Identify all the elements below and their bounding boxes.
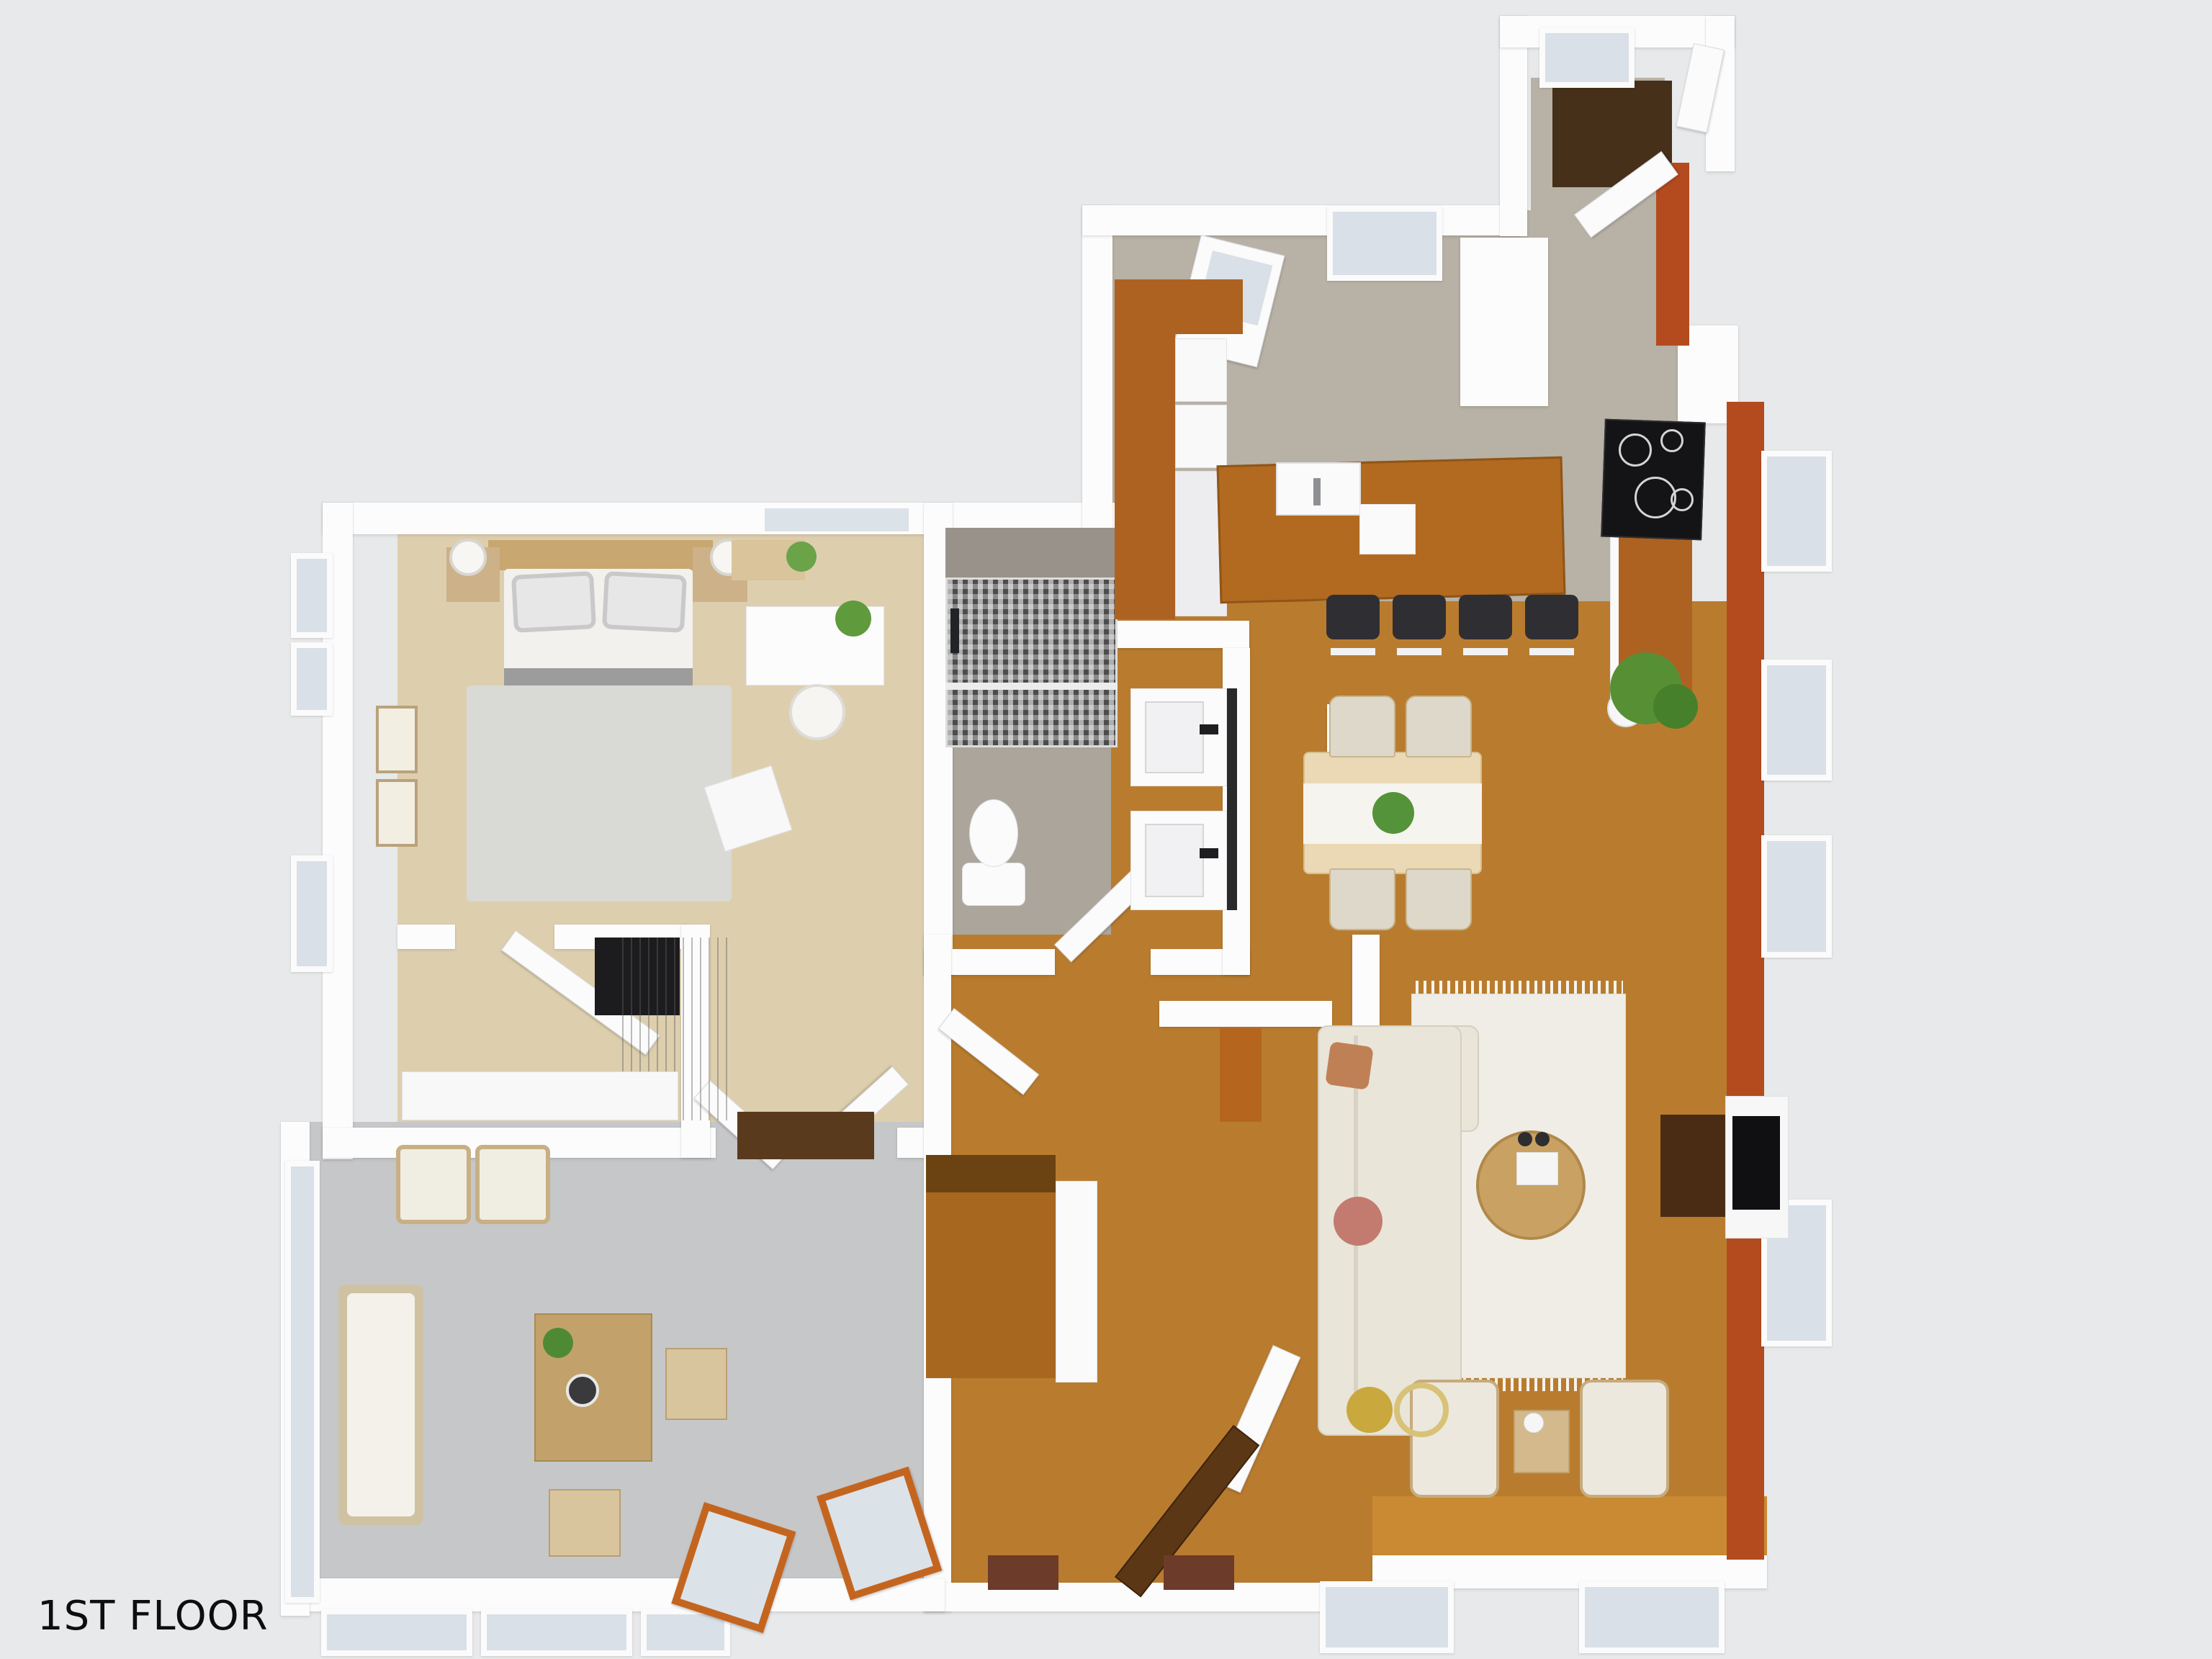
wall-mudroom-left	[1500, 16, 1527, 236]
shower-glass-edge	[945, 683, 1118, 690]
window-bedroom-1	[291, 553, 333, 638]
wall-closet-left	[397, 925, 455, 949]
decor-gold-ring	[1394, 1382, 1449, 1437]
sunroom-armchair-2	[475, 1145, 550, 1224]
wall-corridor-orange	[1656, 163, 1689, 346]
bath-dark-strip	[1227, 688, 1237, 910]
sunroom-table-tray	[566, 1374, 599, 1407]
shower-mosaic-floor	[945, 577, 1118, 747]
kitchen-cabinet-front-2	[1175, 405, 1227, 468]
bed-pillow-1	[511, 571, 596, 633]
shower-head	[950, 608, 959, 653]
stool-footrest-1	[1331, 648, 1375, 655]
art-frame-1	[376, 706, 418, 773]
dining-chair-3	[1329, 868, 1395, 930]
bath-sink-1	[1145, 701, 1204, 773]
window-mudroom-skylight	[1539, 27, 1635, 88]
staircase	[926, 1192, 1056, 1378]
sofa-pillow-blush	[1334, 1197, 1382, 1246]
window-kitchen-top	[1327, 206, 1442, 281]
bath-sink-2	[1145, 824, 1204, 897]
window-living-bottom-1	[1320, 1581, 1454, 1653]
floor-plan-title: 1ST FLOOR	[37, 1593, 269, 1640]
dining-centerpiece	[1372, 792, 1414, 834]
hearth-rug	[1660, 1115, 1728, 1217]
toilet-bowl	[969, 799, 1018, 867]
wall-hall-top-mid	[1159, 1001, 1332, 1027]
bar-stool-3	[1459, 595, 1512, 639]
living-rug-fringe-top	[1416, 981, 1623, 994]
window-living-bottom-2	[1579, 1581, 1725, 1653]
burner-4	[1671, 488, 1694, 511]
lamp-left	[449, 539, 487, 576]
floor-plan-stage: 1ST FLOOR	[0, 0, 2212, 1659]
dining-chair-1	[1329, 696, 1395, 757]
decor-gold-disc	[1346, 1387, 1393, 1433]
island-column	[1359, 504, 1416, 554]
bath-faucet-2	[1200, 848, 1218, 858]
sunroom-stool-1	[665, 1348, 727, 1420]
window-sunroom-left-wall	[285, 1161, 320, 1603]
bedroom-transom-glass	[765, 508, 909, 531]
dining-chair-4	[1406, 868, 1472, 930]
wall-bathroom-kitchen	[1111, 621, 1249, 648]
window-right-2	[1761, 660, 1832, 781]
island-faucet	[1313, 478, 1321, 505]
bar-stool-1	[1326, 595, 1380, 639]
window-bedroom-2	[291, 642, 333, 716]
coffee-table-card	[1516, 1152, 1558, 1185]
sofa-pillow-tan	[1325, 1041, 1374, 1090]
sunroom-sofa-cushions	[347, 1293, 415, 1516]
wall-living-bottom-tan	[1372, 1496, 1767, 1560]
bed-headboard	[488, 540, 713, 570]
stair-railing	[1056, 1181, 1097, 1382]
coffee-table-bowl-2	[1535, 1132, 1550, 1146]
bar-stool-2	[1393, 595, 1446, 639]
art-frame-2	[376, 779, 418, 847]
window-right-1	[1761, 451, 1832, 572]
burner-1	[1619, 433, 1652, 467]
desk-plant	[835, 601, 871, 637]
entry-alcove-1	[988, 1555, 1058, 1590]
sunroom-stool-2	[549, 1489, 621, 1557]
tv-screen	[1732, 1116, 1780, 1210]
burner-2	[1660, 429, 1683, 452]
bed-pillow-2	[602, 571, 687, 633]
sunroom-armchair-1	[396, 1145, 471, 1224]
window-sunroom-bottom-2	[481, 1609, 632, 1656]
kitchen-cabinet-front-1	[1175, 338, 1227, 402]
wall-right-orange	[1727, 402, 1764, 1560]
side-table-plate	[1524, 1413, 1544, 1433]
shower-back-wall	[945, 528, 1118, 580]
shelf-plant	[786, 541, 817, 572]
wall-kitchen-top	[1082, 205, 1519, 235]
kitchen-plant-2	[1653, 684, 1698, 729]
desk-stool	[789, 684, 845, 740]
wall-pantry-block	[1460, 238, 1548, 406]
hall-closet-panel	[1220, 1028, 1262, 1122]
window-right-3	[1761, 835, 1832, 958]
bath-faucet-1	[1200, 724, 1218, 734]
kitchen-cabinet-left-run	[1115, 333, 1175, 619]
sunroom-table-plant	[543, 1328, 573, 1358]
entry-alcove-2	[1164, 1555, 1234, 1590]
stool-footrest-2	[1397, 648, 1442, 655]
window-sunroom-bottom-1	[321, 1609, 472, 1656]
window-bedroom-3	[291, 855, 333, 972]
kitchen-cabinet-top-run	[1115, 279, 1243, 334]
bar-stool-4	[1525, 595, 1578, 639]
accent-chair-2	[1580, 1380, 1669, 1498]
coffee-table-round	[1476, 1130, 1586, 1240]
porch-step	[737, 1112, 874, 1159]
coffee-table-bowl-1	[1518, 1132, 1532, 1146]
dining-chair-2	[1406, 696, 1472, 757]
stairs-upper-shadow	[926, 1155, 1056, 1194]
toilet-tank	[962, 863, 1025, 906]
stool-footrest-4	[1529, 648, 1574, 655]
stool-footrest-3	[1463, 648, 1508, 655]
closet-grate	[402, 1071, 678, 1120]
bedroom-rug	[467, 685, 732, 902]
